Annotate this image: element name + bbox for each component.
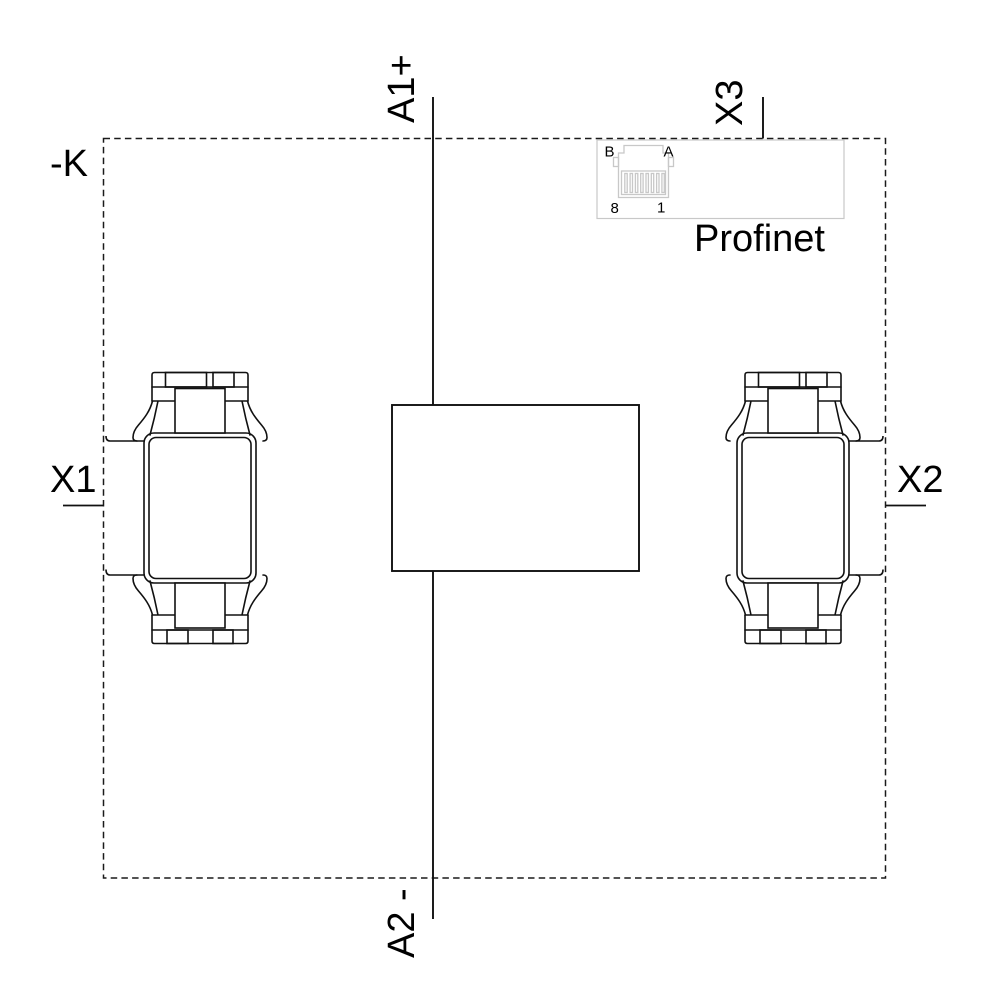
mount-stub xyxy=(848,570,883,576)
connector-label-x1: X1 xyxy=(50,459,96,501)
bus-name-label: Profinet xyxy=(694,218,825,260)
rj45-pin xyxy=(630,174,632,193)
terminal-label-x3: X3 xyxy=(709,80,751,126)
rj45-pin xyxy=(635,174,637,193)
rj45-pin xyxy=(646,174,648,193)
diagram-canvas: -K A1+ A2 - X3 B A 8 1 Profinet xyxy=(0,0,1000,1000)
connector-x1-drawing xyxy=(133,373,267,644)
connector-label-x2: X2 xyxy=(897,459,943,501)
terminal-label-a2: A2 - xyxy=(381,888,423,958)
rj45-pin xyxy=(625,174,627,193)
profinet-port-group: B A 8 1 Profinet xyxy=(597,140,844,260)
rj45-label-1: 1 xyxy=(657,200,665,217)
rj45-pin xyxy=(641,174,643,193)
rj45-frame xyxy=(597,140,844,219)
mount-stub xyxy=(848,436,883,441)
rj45-pin xyxy=(662,174,664,193)
rj45-pin xyxy=(651,174,653,193)
terminal-label-a1: A1+ xyxy=(381,54,423,123)
mount-stub xyxy=(106,570,145,576)
rj45-pin xyxy=(657,174,659,193)
mount-stub xyxy=(106,436,145,441)
connector-x2-drawing xyxy=(726,373,860,644)
connector-x2-group: X2 xyxy=(726,373,943,644)
rj45-label-b: B xyxy=(605,144,615,161)
connector-x1-group: X1 xyxy=(50,373,267,644)
coil-box xyxy=(392,405,639,571)
rj45-label-a: A xyxy=(664,144,674,161)
device-tag-label: -K xyxy=(50,143,88,185)
rj45-label-8: 8 xyxy=(611,200,619,217)
wiring-diagram: -K A1+ A2 - X3 B A 8 1 Profinet xyxy=(0,0,1000,1000)
